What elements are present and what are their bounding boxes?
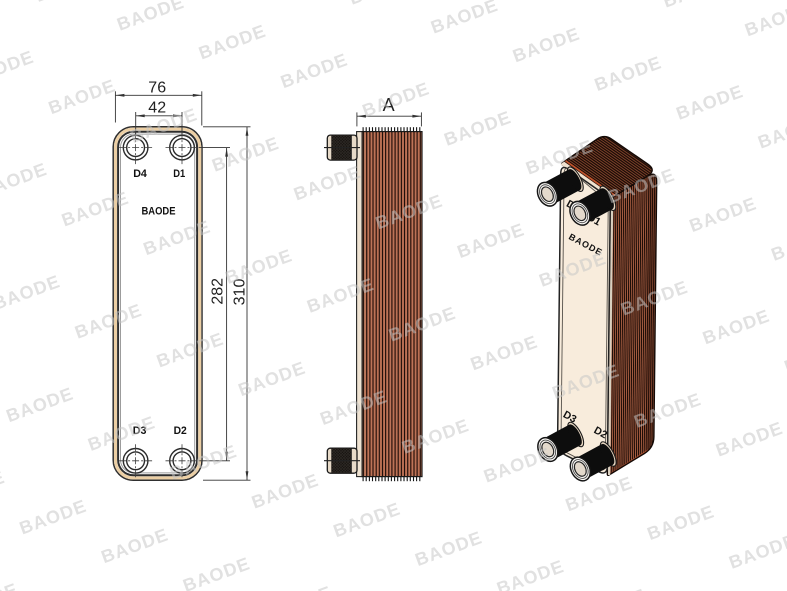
svg-text:D4: D4 — [133, 168, 147, 180]
svg-text:42: 42 — [148, 99, 166, 116]
svg-text:D2: D2 — [174, 425, 187, 437]
svg-text:76: 76 — [148, 80, 166, 97]
svg-text:282: 282 — [209, 278, 226, 305]
svg-text:BAODE: BAODE — [142, 206, 176, 218]
svg-text:D1: D1 — [173, 168, 185, 180]
